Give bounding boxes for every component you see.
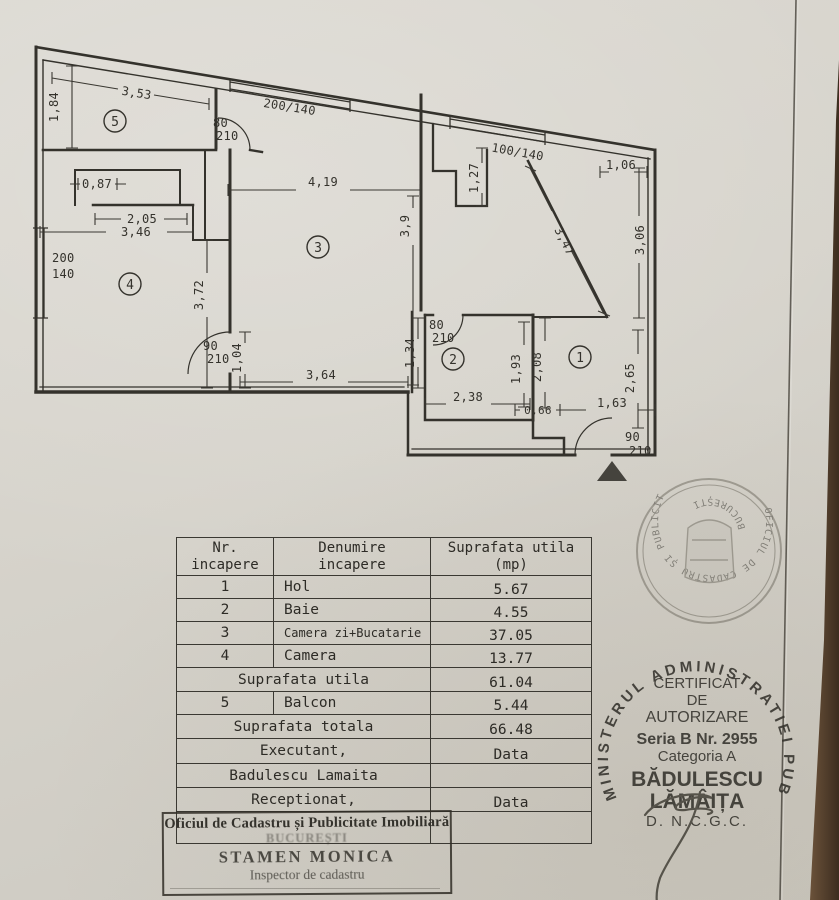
dim-label: 3,9	[398, 215, 412, 238]
scanned-cadastral-document: 5 4 3 2 1 3,53 1,84 200/140 0,87 2,05 3,…	[0, 0, 839, 900]
door-label: 90	[203, 339, 218, 353]
cert-line: AUTORIZARE	[646, 709, 749, 726]
room-area: 37.05	[431, 622, 592, 645]
dim-label: 0,66	[524, 404, 552, 417]
dim-label: 0,87	[82, 177, 112, 191]
dim-label: 2,38	[453, 390, 483, 404]
door-label: 210	[207, 352, 230, 366]
round-stamp-emblem	[685, 520, 734, 583]
room-area: 4.55	[431, 599, 592, 622]
receptionat-row: Receptionat, Data	[177, 788, 592, 812]
executant-label: Executant,	[177, 739, 431, 764]
executant-data-label: Data	[431, 739, 592, 764]
room-number-1: 1	[576, 351, 584, 366]
door-label: 210	[432, 331, 455, 345]
executant-row: Executant, Data	[177, 739, 592, 764]
door-label: 80	[429, 318, 444, 332]
door-labels: 80 210 90 210 80 210 90 210	[203, 116, 652, 458]
header-suprafata: Suprafata utila	[448, 540, 574, 556]
office-stamp-city: BUCUREȘTI	[164, 830, 450, 847]
dim-label: 3,72	[192, 280, 206, 310]
room-name: Balcon	[274, 692, 431, 715]
window-label: 140	[52, 267, 75, 281]
door-label: 90	[625, 430, 640, 444]
room-name: Camera zi+Bucatarie	[274, 622, 431, 645]
cert-line: DE	[687, 692, 708, 709]
table-row: 3 Camera zi+Bucatarie 37.05	[177, 622, 592, 645]
suprafata-utila-row: Suprafata utila 61.04	[177, 668, 592, 692]
table-row: 4 Camera 13.77	[177, 645, 592, 668]
office-stamp: Oficiul de Cadastru și Publicitate Imobi…	[162, 810, 453, 896]
dim-label: 3,46	[121, 225, 151, 239]
window-label: 200	[52, 251, 75, 265]
dim-label: 1,93	[509, 354, 523, 384]
suprafata-totala-value: 66.48	[431, 715, 592, 739]
dim-label: 1,34	[403, 338, 417, 368]
suprafata-totala-label: Suprafata totala	[177, 715, 431, 739]
room-number-3: 3	[314, 241, 322, 256]
table-row: 5 Balcon 5.44	[177, 692, 592, 715]
area-table: Nr. incapere Denumire incapere Suprafata…	[176, 537, 592, 844]
suprafata-utila-label: Suprafata utila	[177, 668, 431, 692]
inspector-title: Inspector de cadastru	[164, 866, 450, 884]
dim-label: 2,05	[127, 212, 157, 226]
suprafata-utila-value: 61.04	[431, 668, 592, 692]
dim-label: 3,06	[633, 225, 647, 255]
room-area: 5.67	[431, 576, 592, 599]
table-header-row: Nr. incapere Denumire incapere Suprafata…	[177, 538, 592, 576]
dim-label: 2,08	[530, 352, 544, 382]
room-nr: 4	[177, 645, 274, 668]
dim-label: 1,84	[47, 92, 61, 122]
stamp-underline	[170, 888, 440, 889]
dim-label: 3,47	[551, 225, 577, 258]
cert-line: BĂDULESCU	[631, 768, 763, 791]
room-nr: 3	[177, 622, 274, 645]
cert-line: D. N.C.G.C.	[646, 813, 748, 830]
cert-line: CERTIFICAT	[654, 675, 741, 692]
table-row: 1 Hol 5.67	[177, 576, 592, 599]
table-row: 2 Baie 4.55	[177, 599, 592, 622]
dim-label: 1,63	[597, 396, 627, 410]
dim-label: 4,19	[308, 175, 338, 189]
room-area: 5.44	[431, 692, 592, 715]
inspector-name: STAMEN MONICA	[164, 846, 450, 868]
receptionat-data-label: Data	[431, 788, 592, 812]
door-label: 80	[213, 116, 228, 130]
room-nr: 5	[177, 692, 274, 715]
room-nr: 1	[177, 576, 274, 599]
executant-name: Badulescu Lamaita	[177, 764, 431, 788]
room-number-4: 4	[126, 278, 134, 293]
receptionat-label: Receptionat,	[177, 788, 431, 812]
room-number-2: 2	[449, 353, 457, 368]
dim-label: 1,06	[606, 158, 636, 172]
room-name: Hol	[274, 576, 431, 599]
window-label: 200/140	[263, 96, 317, 118]
header-denumire: Denumire	[318, 540, 385, 556]
room-name: Camera	[274, 645, 431, 668]
window-label: 100/140	[491, 141, 545, 164]
room-area: 13.77	[431, 645, 592, 668]
dim-label: 3,64	[306, 368, 336, 382]
door-label: 210	[629, 444, 652, 458]
executant-name-row: Badulescu Lamaita	[177, 764, 592, 788]
north-arrow-icon	[597, 461, 627, 481]
desk-edge	[810, 60, 839, 900]
dim-label: 1,04	[230, 343, 244, 373]
room-name: Baie	[274, 599, 431, 622]
dim-label: 1,27	[467, 163, 481, 193]
cert-line: Seria B Nr. 2955	[637, 731, 758, 748]
header-nr: Nr.	[212, 540, 237, 556]
room-number-5: 5	[111, 115, 119, 130]
room-nr: 2	[177, 599, 274, 622]
window-symbols	[33, 80, 545, 318]
suprafata-totala-row: Suprafata totala 66.48	[177, 715, 592, 739]
dim-label: 2,65	[623, 363, 637, 393]
cert-line: Categoria A	[658, 748, 736, 765]
door-label: 210	[216, 129, 239, 143]
dim-label: 3,53	[121, 84, 153, 103]
